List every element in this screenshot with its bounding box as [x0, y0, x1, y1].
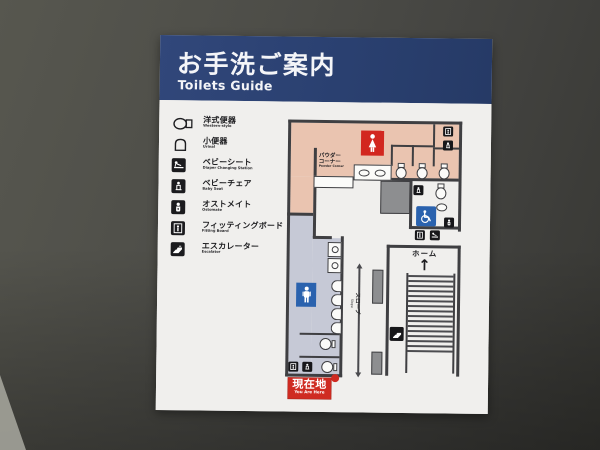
- powder-corner-en: Powder Corner: [319, 165, 344, 169]
- mens-toilet-sign: [296, 283, 316, 307]
- legend-item-fitting-board: フィッティングボードFitting Board: [171, 221, 289, 236]
- accessible-toilet-sign: [416, 206, 436, 226]
- you-are-here-marker: 現在地 You Are Here: [288, 378, 331, 400]
- fitting-board-icon: [415, 230, 425, 240]
- service-block: [380, 181, 410, 214]
- legend-item-western-style: 洋式便器Western-style: [172, 116, 290, 131]
- stair-step: [408, 280, 453, 282]
- wall: [409, 180, 412, 229]
- western-toilet-icon: [172, 116, 198, 130]
- urinal: [330, 322, 340, 334]
- diaper-changing-icon: [172, 158, 186, 172]
- sink: [436, 203, 447, 211]
- stall-wall: [433, 149, 435, 166]
- womens-toilet-area-strip: [290, 177, 313, 213]
- stair-step: [408, 340, 453, 342]
- legend-label-en: Baby Seat: [202, 188, 237, 192]
- stair-rail: [405, 273, 408, 373]
- baby-seat-icon: [302, 362, 312, 372]
- legend-label-en: Western-style: [203, 125, 231, 129]
- stair-step: [408, 315, 453, 317]
- floor-map: パウダー コーナー Powder Corner: [285, 120, 462, 403]
- sign-title: お手洗ご案内: [177, 44, 336, 82]
- stair-step: [408, 330, 453, 332]
- legend-item-ostomate: オストメイトOstomate: [171, 200, 289, 215]
- baby-seat-icon: [413, 185, 423, 195]
- legend-item-baby-seat: ベビーチェアBaby Seat: [171, 179, 289, 194]
- sign-subtitle: Toilets Guide: [178, 77, 273, 93]
- baby-seat-icon: [443, 140, 453, 150]
- mens-sink-unit: [328, 242, 342, 257]
- legend-label-en: Ostomate: [202, 209, 237, 213]
- stair-step: [408, 320, 453, 322]
- sink: [331, 262, 338, 269]
- stair-step: [408, 290, 453, 292]
- womens-toilet-sign: [361, 130, 384, 155]
- escalator-icon: [171, 242, 185, 256]
- service-block: [371, 352, 382, 375]
- toilet: [319, 338, 335, 350]
- toilet: [434, 183, 447, 199]
- womens-sink-counter: [354, 164, 392, 180]
- sign-header: お手洗ご案内 Toilets Guide: [160, 35, 493, 104]
- stair-step: [408, 335, 453, 337]
- wall: [313, 236, 332, 239]
- slope-label-jp: スロープ: [353, 281, 359, 325]
- urinal: [331, 294, 341, 306]
- toilet: [395, 163, 408, 179]
- stair-step: [408, 285, 453, 287]
- up-arrow-icon: ↑: [390, 259, 458, 273]
- escalator-icon: [390, 327, 404, 341]
- stall-wall: [433, 124, 435, 147]
- powder-counter: [313, 176, 353, 188]
- sign-body: 洋式便器Western-style 小便器Urinal ベビーシートDiaper…: [156, 100, 492, 414]
- stair-rail: [452, 274, 455, 374]
- male-icon: [299, 285, 314, 305]
- legend-label-en: Fitting Board: [202, 230, 261, 234]
- legend-item-diaper-changing: ベビーシートDiaper Changing Station: [172, 158, 290, 173]
- toilet: [416, 163, 429, 179]
- ostomate-icon: [444, 217, 454, 227]
- toilets-guide-sign: お手洗ご案内 Toilets Guide 洋式便器Western-style 小…: [156, 35, 493, 414]
- legend-label-en: Escalator: [202, 251, 243, 255]
- wall: [287, 213, 313, 216]
- sink: [359, 169, 370, 176]
- fitting-board-icon: [288, 362, 298, 372]
- slope-label: スロープ Slope: [345, 281, 360, 325]
- legend-label-en: Urinal: [203, 146, 221, 150]
- toilet: [321, 361, 337, 373]
- fitting-board-icon: [171, 221, 185, 235]
- mens-sink-unit: [327, 258, 341, 273]
- stall-wall: [412, 145, 414, 166]
- legend-item-urinal: 小便器Urinal: [172, 137, 290, 152]
- stair-step: [408, 325, 453, 327]
- wall: [458, 122, 462, 232]
- service-block: [372, 270, 383, 304]
- platform-direction: ホーム ↑: [390, 248, 458, 273]
- legend-label-en: Diaper Changing Station: [203, 167, 253, 171]
- urinal: [331, 280, 341, 292]
- baby-seat-icon: [171, 179, 185, 193]
- toilet: [438, 163, 451, 179]
- wall: [313, 148, 317, 238]
- female-icon: [364, 132, 381, 153]
- sink: [331, 246, 338, 253]
- legend: 洋式便器Western-style 小便器Urinal ベビーシートDiaper…: [171, 116, 291, 257]
- you-are-here-dot: [331, 374, 339, 382]
- legend-item-escalator: エスカレーターEscalator: [171, 242, 289, 257]
- slope-arrow-down: [355, 372, 361, 377]
- stall-wall: [391, 145, 393, 166]
- stair-step: [408, 300, 453, 302]
- slope-arrow-up: [356, 263, 362, 268]
- stair-step: [408, 295, 453, 297]
- wheelchair-icon: [419, 209, 434, 224]
- ostomate-icon: [171, 200, 185, 214]
- stair-step: [407, 350, 452, 352]
- stair-step: [408, 345, 453, 347]
- photo-of-toilets-guide-sign: { "sign": { "title": "お手洗ご案内", "subtitle…: [0, 0, 600, 450]
- stair-step: [408, 310, 453, 312]
- wall: [385, 245, 389, 376]
- you-are-here-en: You Are Here: [292, 391, 327, 396]
- fitting-board-icon: [443, 126, 453, 136]
- stair-step: [408, 275, 453, 277]
- stair-step: [408, 305, 453, 307]
- diaper-changing-icon: [430, 230, 440, 240]
- urinal-icon: [172, 137, 198, 151]
- sink: [375, 170, 386, 177]
- urinal: [330, 308, 340, 320]
- wall-corner-highlight: [0, 375, 26, 450]
